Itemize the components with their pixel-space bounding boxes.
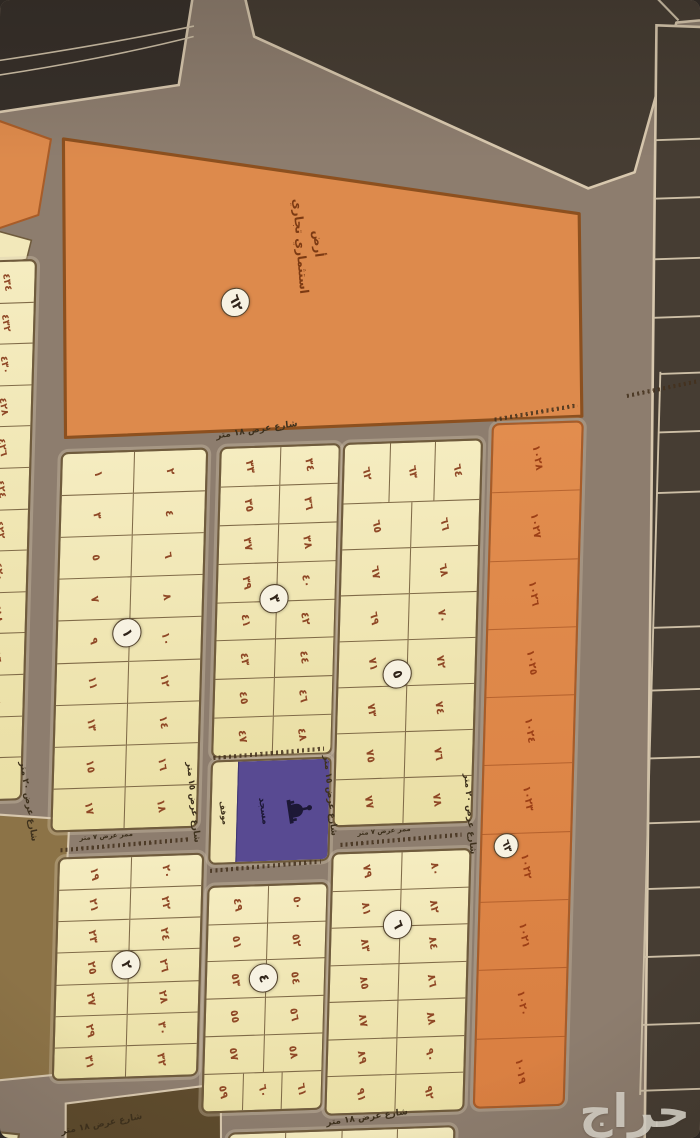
plot-number: ٧٢ bbox=[434, 654, 448, 670]
plot-number: ٨٦ bbox=[425, 973, 439, 989]
plot-number: ٣٩ bbox=[240, 575, 254, 591]
plot-number: ٢١ bbox=[87, 897, 101, 913]
plot-number: ٣٦ bbox=[301, 496, 315, 512]
plot-number: ٨٤ bbox=[426, 936, 440, 952]
plot: ٢٤ bbox=[129, 918, 200, 952]
plot: ٦ bbox=[132, 533, 204, 577]
plot-number: ٣٧ bbox=[241, 536, 255, 552]
plot: ٩٩ bbox=[396, 1127, 453, 1138]
plot-number: ٦٧ bbox=[368, 564, 382, 580]
plot: ٤٣٤ bbox=[0, 261, 35, 304]
block-6-odd-column: ٧٩ ٨١ ٨٣ ٨٥ ٨٧ ٨٩ ٩١ bbox=[326, 852, 401, 1113]
plot-number: ١٢ bbox=[157, 673, 171, 689]
plot-number: ٥٣ bbox=[229, 972, 243, 988]
plot: ٧٦ bbox=[404, 730, 473, 778]
plot: ٧٩ bbox=[333, 852, 401, 891]
plot-number: ١٤ bbox=[156, 715, 170, 731]
plot: ١٧ bbox=[52, 787, 124, 830]
plot: ٣٠ bbox=[126, 1012, 197, 1046]
plot: ٥٨ bbox=[263, 1033, 322, 1071]
plot: ٨٦ bbox=[398, 962, 466, 1001]
plot-number: ٤٦ bbox=[296, 688, 310, 704]
plat-map-photo: أرض استثماري تجاري ٦٢ ٤٣٤ ٤٣٢ ٤٣٠ ٤٢٨ ٤٢… bbox=[0, 0, 700, 1138]
plot-number: ٣٣ bbox=[243, 459, 257, 475]
plot: ١ bbox=[62, 452, 134, 496]
plot-number: ٢٨ bbox=[156, 989, 170, 1005]
block-4: ٤٩ ٥١ ٥٣ ٥٥ ٥٧ ٥٠ ٥٢ ٥٤ ٥٦ ٥٨ ٥٩ ٦٠ ٦١ bbox=[201, 882, 329, 1114]
plot: ٤ bbox=[133, 491, 205, 535]
dark-area-right bbox=[625, 22, 700, 1138]
plot-number: ٣٢ bbox=[154, 1052, 168, 1068]
plot-number: ١٦ bbox=[155, 757, 169, 773]
plot-number: ٨٧ bbox=[356, 1012, 370, 1028]
plot-number: ٣٥ bbox=[242, 497, 256, 513]
commercial-block-number: ٦٢ bbox=[225, 292, 245, 313]
plot-number: ٦٣ bbox=[405, 464, 419, 480]
plot-number: ٤٣٢ bbox=[0, 313, 13, 333]
plot-number: ٥٠ bbox=[290, 895, 304, 911]
block-number: ٤ bbox=[255, 971, 272, 985]
plot: ١٥ bbox=[54, 745, 126, 789]
plot-number: ٨١ bbox=[359, 901, 373, 917]
plot: ٤٢٦ bbox=[0, 427, 30, 470]
plot-number: ١٠١٩ bbox=[512, 1058, 527, 1085]
plot-number: ٤٣٤ bbox=[0, 272, 14, 292]
plot: ٨٧ bbox=[328, 1001, 396, 1040]
plot: ٣٣ bbox=[221, 447, 280, 487]
plot-number: ٧٦ bbox=[431, 746, 445, 762]
plot: ٢٠ bbox=[131, 855, 202, 889]
plot: ٩٠ bbox=[396, 1036, 464, 1075]
plot: ٦٢ bbox=[343, 443, 389, 503]
plot-number: ٧٨ bbox=[430, 792, 444, 808]
plot-number: ٨٣ bbox=[358, 938, 372, 954]
plot-number: ٤٧ bbox=[236, 729, 250, 745]
plot: ٧٠ bbox=[408, 592, 477, 640]
plot-number: ١٠٢٠ bbox=[514, 990, 529, 1017]
plot-number: ٤٢٢ bbox=[0, 520, 7, 540]
parking-label: موقف bbox=[218, 799, 231, 825]
plot: ١٠٢٠ bbox=[477, 968, 567, 1039]
plot: ١٠ bbox=[129, 617, 201, 661]
block-number: ٦ bbox=[389, 918, 406, 932]
plot: ١٩ bbox=[59, 857, 130, 891]
plot-number: ٥٢ bbox=[289, 933, 303, 949]
plot-number: ١٠٢٦ bbox=[525, 580, 540, 607]
plot: ٥ bbox=[59, 536, 131, 580]
plot: ٢٨ bbox=[127, 981, 198, 1015]
plot: ٣٦ bbox=[279, 484, 338, 524]
dark-area-top bbox=[238, 0, 700, 200]
plot: ٦٦ bbox=[411, 500, 480, 548]
plot: ٩١ bbox=[326, 1075, 394, 1113]
plot: ٤٩ bbox=[209, 886, 268, 925]
plot: ٦٤ bbox=[434, 440, 481, 500]
plot: ٦٣ bbox=[388, 442, 435, 502]
plot: ٢٩ bbox=[55, 1015, 126, 1049]
plot: ٤٥ bbox=[214, 678, 273, 718]
block-number: ١ bbox=[118, 626, 135, 640]
plot-number: ١٧ bbox=[81, 801, 95, 817]
plot-number: ١٩ bbox=[88, 866, 102, 882]
plot-number: ٤٠ bbox=[299, 573, 313, 589]
plot-number: ٥٩ bbox=[216, 1085, 230, 1101]
plot-number: ١٠٢٥ bbox=[524, 649, 539, 676]
plot: ٨ bbox=[130, 575, 202, 619]
block-4-bottom-row: ٥٩ ٦٠ ٦١ bbox=[203, 1071, 321, 1112]
plot-number: ٢٥ bbox=[85, 960, 99, 976]
plot-number: ٦١ bbox=[295, 1082, 309, 1098]
plot-number: ٤٣٠ bbox=[0, 355, 12, 375]
plot: ٤٤ bbox=[274, 638, 333, 678]
plot: ٤٧ bbox=[213, 717, 272, 756]
plot: ٤١٨ bbox=[0, 592, 26, 635]
plot-number: ٩٢ bbox=[422, 1084, 436, 1100]
plot: ٨٩ bbox=[327, 1038, 395, 1077]
plot-number: ٥١ bbox=[230, 935, 244, 951]
plot-number: ٤٢٦ bbox=[0, 438, 10, 458]
plot-number: ٩٠ bbox=[423, 1047, 437, 1063]
plot-number: ٥٨ bbox=[286, 1045, 300, 1061]
plot: ٢٧ bbox=[56, 983, 127, 1017]
plot: ٩٥ bbox=[284, 1131, 341, 1138]
plot: ٩٣ bbox=[229, 1133, 285, 1138]
mosque-row: موقف مسجد bbox=[208, 756, 332, 865]
plot-number: ٢٧ bbox=[84, 992, 98, 1008]
block-6-even-column: ٨٠ ٨٢ ٨٤ ٨٦ ٨٨ ٩٠ ٩٢ bbox=[394, 850, 470, 1111]
plot-number: ٥٧ bbox=[227, 1046, 241, 1062]
block-number: ٣ bbox=[265, 592, 282, 606]
plot-number: ١٠ bbox=[158, 631, 172, 647]
plot: ٥١ bbox=[207, 923, 266, 962]
plot-number: ٤١٦ bbox=[0, 645, 4, 665]
haraj-watermark: حراج bbox=[579, 1084, 690, 1138]
plot: ٦٠ bbox=[242, 1072, 282, 1110]
plot: ٦٩ bbox=[340, 594, 409, 642]
plot: ١٢ bbox=[128, 659, 200, 703]
plot: ٤١٤ bbox=[0, 675, 23, 718]
plot-number: ٣ bbox=[90, 511, 103, 520]
plot: ٣٨ bbox=[278, 522, 337, 562]
plot-number: ١ bbox=[91, 469, 104, 478]
plot: ٢ bbox=[134, 450, 206, 494]
plot: ٤٣٢ bbox=[0, 302, 34, 345]
plot: ٤٣ bbox=[215, 640, 274, 680]
plot: ٦١ bbox=[281, 1071, 321, 1109]
plot-number: ٩١ bbox=[353, 1087, 367, 1103]
plot: ١٣ bbox=[55, 703, 127, 747]
plot: ٣٥ bbox=[220, 486, 279, 526]
block-6: ٧٩ ٨١ ٨٣ ٨٥ ٨٧ ٨٩ ٩١ ٨٠ ٨٢ ٨٤ ٨٦ ٨٨ ٩٠ ٩… bbox=[324, 848, 471, 1116]
plot-number: ٤٩ bbox=[231, 897, 245, 913]
plot: ٩٢ bbox=[395, 1073, 463, 1111]
plot: ٤٢٠ bbox=[0, 551, 27, 594]
plot: ١٠٢٣ bbox=[482, 764, 572, 835]
plot-number: ١٠٢٧ bbox=[527, 512, 542, 539]
plot: ٤٦ bbox=[273, 676, 332, 716]
plot-number: ١٠٢٣ bbox=[520, 785, 535, 812]
plot-number: ٦٢ bbox=[359, 466, 373, 482]
parking-strip: موقف bbox=[210, 762, 238, 863]
plot-number: ٦ bbox=[161, 550, 174, 559]
plot-number: ٢٣ bbox=[86, 929, 100, 945]
plot-number: ٦٦ bbox=[438, 516, 452, 532]
plot-number: ٤٥ bbox=[237, 690, 251, 706]
plot: ١٤ bbox=[127, 701, 199, 745]
plot: ٧٢ bbox=[407, 638, 476, 686]
plot-number: ٨ bbox=[160, 592, 173, 601]
plot: ٨٠ bbox=[401, 850, 469, 889]
plot: ٣٧ bbox=[219, 524, 278, 564]
plot-number: ٤٢٤ bbox=[0, 479, 8, 499]
plot: ٧٧ bbox=[334, 778, 403, 825]
plot: ١٠٢٨ bbox=[492, 422, 582, 493]
plot: ١٠٢٤ bbox=[484, 695, 574, 766]
plot: ٢٢ bbox=[130, 886, 201, 920]
plot: ٧٥ bbox=[336, 732, 405, 780]
plot-number: ٨٨ bbox=[424, 1010, 438, 1026]
orange-strip-block: ١٠٢٨ ١٠٢٧ ١٠٢٦ ١٠٢٥ ١٠٢٤ ١٠٢٣ ١٠٢٢ ١٠٢١ … bbox=[473, 420, 584, 1109]
block-number: ٦٣ bbox=[499, 838, 514, 854]
plot: ٧ bbox=[58, 578, 130, 622]
plot-number: ٢ bbox=[163, 467, 176, 476]
plot-number: ٩ bbox=[87, 637, 100, 646]
plot-number: ٤١٨ bbox=[0, 603, 5, 623]
plot: ٧٤ bbox=[405, 684, 474, 732]
plot-number: ٢٠ bbox=[159, 863, 173, 879]
plot-number: ٧٣ bbox=[364, 702, 378, 718]
plot-number: ٤٢ bbox=[298, 611, 312, 627]
plot: ٥٥ bbox=[205, 998, 264, 1037]
plot-number: ١٠٢١ bbox=[516, 921, 531, 948]
plot-number: ١٠٢٢ bbox=[518, 853, 533, 880]
plot-number: ٤٤ bbox=[297, 650, 311, 666]
plot-number: ٤٨ bbox=[295, 727, 309, 743]
plot-number: ٥٤ bbox=[288, 970, 302, 986]
plot: ٥٠ bbox=[268, 884, 327, 923]
plot-number: ٧٥ bbox=[363, 748, 377, 764]
plot-number: ٥ bbox=[89, 553, 102, 562]
plot-number: ٨٢ bbox=[427, 899, 441, 915]
plot-number: ٦٨ bbox=[436, 562, 450, 578]
block-5-top-row: ٦٢ ٦٣ ٦٤ bbox=[343, 440, 481, 504]
plot: ٨٨ bbox=[397, 999, 465, 1038]
plot: ٧٣ bbox=[337, 686, 406, 734]
mosque-plot: مسجد bbox=[235, 759, 330, 862]
block-5: ٦٢ ٦٣ ٦٤ ٦٥ ٦٧ ٦٩ ٧١ ٧٣ ٧٥ ٧٧ ٦٦ ٦٨ ٧٠ ٧… bbox=[332, 438, 483, 827]
plot: ١٠١٩ bbox=[475, 1037, 565, 1107]
corner-cream-plot bbox=[0, 1126, 19, 1138]
plot: ٥٢ bbox=[267, 921, 326, 960]
plot: ٣٤ bbox=[280, 445, 339, 485]
plot-number: ٨٩ bbox=[354, 1050, 368, 1066]
plot-number: ٤٣ bbox=[238, 652, 252, 668]
plot-number: ٧٧ bbox=[362, 794, 376, 810]
plot: ٤٢٢ bbox=[0, 509, 28, 552]
plot-number: ١٨ bbox=[153, 799, 167, 815]
plot: ٣ bbox=[61, 494, 133, 538]
plot: ٤٣٠ bbox=[0, 344, 33, 387]
plot-number: ٢٤ bbox=[157, 926, 171, 942]
plot: ٦٥ bbox=[342, 502, 411, 550]
plot-number: ٤٢٨ bbox=[0, 396, 11, 416]
plot: ١٠٢٧ bbox=[490, 491, 580, 562]
plot-number: ٤ bbox=[162, 508, 175, 517]
plot: ٤٢٤ bbox=[0, 468, 29, 511]
plot-number: ٧١ bbox=[365, 656, 379, 672]
plot-number: ٣١ bbox=[82, 1055, 96, 1071]
plot: ٦٨ bbox=[409, 546, 478, 594]
plot-number: ٤١٤ bbox=[0, 686, 3, 706]
mosque-label: مسجد bbox=[256, 796, 270, 825]
plot: ٦٧ bbox=[341, 548, 410, 596]
plot-number: ٤١٢ bbox=[0, 727, 2, 747]
plot-number: ٤١ bbox=[239, 613, 253, 629]
orange-wedge-plot bbox=[0, 114, 52, 233]
plot-number: ٥٦ bbox=[287, 1007, 301, 1023]
plot-number: ١٠٢٨ bbox=[529, 444, 544, 471]
plot: ٣١ bbox=[54, 1046, 125, 1079]
plot: ٥٦ bbox=[264, 996, 323, 1035]
block-number: ٥ bbox=[388, 667, 405, 681]
plot: ١٠٢٥ bbox=[486, 627, 576, 698]
plot: ٥٧ bbox=[204, 1035, 263, 1073]
plot-number: ٣٠ bbox=[155, 1021, 169, 1037]
plot-number: ٣٤ bbox=[302, 457, 316, 473]
plot-number: ٧٤ bbox=[433, 700, 447, 716]
plot: ٤٢٨ bbox=[0, 385, 31, 428]
block-number: ٢ bbox=[117, 958, 134, 972]
plot-number: ١١ bbox=[85, 675, 99, 691]
plot-number: ٦٤ bbox=[451, 463, 465, 479]
plot-number: ١٠٢٤ bbox=[522, 717, 537, 744]
plot: ٩٧ bbox=[340, 1129, 397, 1138]
plot-number: ٧٠ bbox=[435, 608, 449, 624]
plot-number: ٤٢٠ bbox=[0, 562, 6, 582]
plot: ١٠٢٦ bbox=[488, 559, 578, 630]
plot: ٥٩ bbox=[203, 1073, 242, 1111]
plot: ١١ bbox=[56, 661, 128, 705]
plot-number: ٨٠ bbox=[428, 861, 442, 877]
plot-number: ٢٦ bbox=[157, 958, 171, 974]
plot: ٤١٢ bbox=[0, 716, 22, 759]
mosque-icon bbox=[279, 789, 319, 831]
plot: ٨٥ bbox=[330, 964, 398, 1003]
orange-strip-cells: ١٠٢٨ ١٠٢٧ ١٠٢٦ ١٠٢٥ ١٠٢٤ ١٠٢٣ ١٠٢٢ ١٠٢١ … bbox=[475, 422, 582, 1106]
plot-number: ٦٥ bbox=[369, 518, 383, 534]
plot-number: ٦٩ bbox=[367, 610, 381, 626]
plot-number: ١٣ bbox=[84, 717, 98, 733]
plot-number: ٣٨ bbox=[300, 534, 314, 550]
plot: ٢١ bbox=[58, 889, 129, 923]
plot-number: ٢٩ bbox=[83, 1023, 97, 1039]
plot-number: ١٥ bbox=[83, 759, 97, 775]
plot-number: ٨٥ bbox=[357, 975, 371, 991]
map-plane: أرض استثماري تجاري ٦٢ ٤٣٤ ٤٣٢ ٤٣٠ ٤٢٨ ٤٢… bbox=[0, 0, 700, 1138]
plot-number: ٧ bbox=[88, 595, 101, 604]
plot: ١٠٢١ bbox=[479, 900, 569, 971]
plot: ٢٣ bbox=[57, 920, 128, 954]
plot: ٤١٦ bbox=[0, 634, 25, 677]
plot-number: ٦٠ bbox=[255, 1083, 269, 1099]
plot-number: ٢٢ bbox=[158, 895, 172, 911]
plot: ٣٢ bbox=[125, 1044, 196, 1077]
plot-number: ٧٩ bbox=[360, 864, 374, 880]
plot-number: ٥٥ bbox=[228, 1009, 242, 1025]
